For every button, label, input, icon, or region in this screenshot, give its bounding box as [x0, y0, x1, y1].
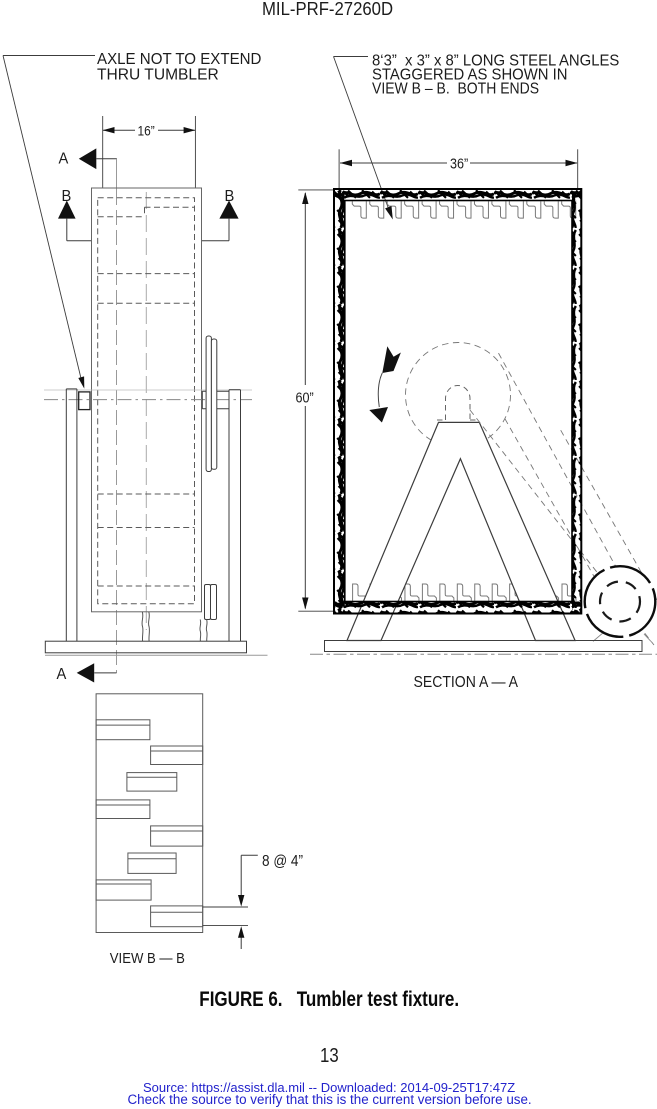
svg-text:Check the source to verify tha: Check the source to verify that this is … [128, 1092, 532, 1107]
svg-text:16”: 16” [138, 123, 155, 139]
svg-text:THRU TUMBLER: THRU TUMBLER [97, 66, 219, 83]
svg-text:SECTION A — A: SECTION A — A [414, 674, 519, 691]
svg-text:13: 13 [320, 1043, 339, 1066]
svg-text:VIEW B — B: VIEW B — B [110, 949, 185, 966]
svg-text:FIGURE 6. Tumbler test fixtu: FIGURE 6. Tumbler test fixture. [199, 988, 459, 1011]
svg-text:36”: 36” [450, 156, 469, 172]
svg-text:60”: 60” [296, 390, 315, 406]
svg-text:VIEW B – B. BOTH ENDS: VIEW B – B. BOTH ENDS [372, 80, 539, 98]
svg-text:8 @ 4”: 8 @ 4” [262, 853, 303, 870]
svg-text:B: B [62, 188, 72, 205]
svg-text:B: B [225, 188, 235, 205]
svg-text:MIL-PRF-27260D: MIL-PRF-27260D [262, 0, 393, 19]
svg-text:A: A [57, 666, 68, 683]
svg-text:A: A [59, 150, 70, 167]
